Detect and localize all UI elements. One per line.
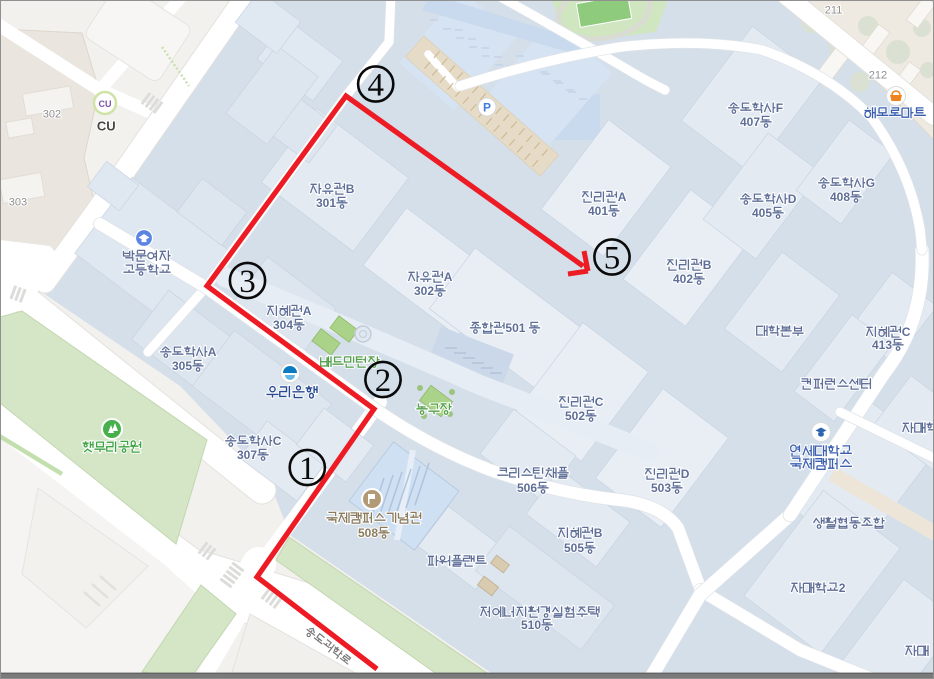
svg-text:B: B bbox=[703, 258, 712, 272]
svg-text:302: 302 bbox=[414, 284, 434, 298]
svg-text:211: 211 bbox=[825, 5, 843, 17]
svg-text:401: 401 bbox=[588, 204, 608, 218]
svg-text:A: A bbox=[303, 304, 312, 318]
svg-text:301: 301 bbox=[316, 196, 336, 210]
svg-text:2: 2 bbox=[375, 363, 392, 399]
svg-text:501: 501 bbox=[505, 321, 525, 335]
svg-text:5: 5 bbox=[604, 241, 621, 277]
svg-text:1: 1 bbox=[299, 451, 316, 487]
svg-text:CU: CU bbox=[97, 118, 116, 133]
svg-text:C: C bbox=[902, 325, 911, 339]
svg-text:505: 505 bbox=[564, 541, 584, 555]
svg-text:413: 413 bbox=[872, 338, 892, 352]
svg-text:304: 304 bbox=[273, 318, 293, 332]
svg-text:D: D bbox=[681, 467, 690, 481]
svg-text:3: 3 bbox=[239, 264, 256, 300]
svg-text:303: 303 bbox=[9, 197, 27, 209]
svg-text:A: A bbox=[618, 190, 627, 204]
svg-text:305: 305 bbox=[172, 359, 192, 373]
svg-text:A: A bbox=[208, 345, 217, 359]
svg-text:502: 502 bbox=[565, 409, 585, 423]
svg-text:D: D bbox=[788, 192, 797, 206]
svg-text:F: F bbox=[776, 101, 783, 115]
svg-text:C: C bbox=[595, 395, 604, 409]
svg-text:307: 307 bbox=[237, 448, 257, 462]
svg-text:4: 4 bbox=[367, 68, 384, 104]
svg-text:508: 508 bbox=[358, 526, 378, 540]
svg-text:503: 503 bbox=[651, 481, 671, 495]
svg-text:405: 405 bbox=[752, 206, 772, 220]
svg-text:510: 510 bbox=[521, 618, 541, 632]
svg-text:CU: CU bbox=[99, 99, 112, 109]
svg-text:B: B bbox=[346, 182, 355, 196]
svg-text:2: 2 bbox=[839, 581, 846, 595]
svg-text:407: 407 bbox=[740, 115, 760, 129]
svg-text:C: C bbox=[273, 434, 282, 448]
svg-text:B: B bbox=[594, 526, 603, 540]
svg-text:302: 302 bbox=[43, 109, 61, 121]
svg-text:212: 212 bbox=[869, 70, 887, 82]
svg-text:A: A bbox=[444, 270, 453, 284]
svg-text:G: G bbox=[866, 176, 875, 190]
svg-text:402: 402 bbox=[673, 272, 693, 286]
svg-text:408: 408 bbox=[830, 190, 850, 204]
svg-text:506: 506 bbox=[517, 481, 537, 495]
svg-text:P: P bbox=[483, 101, 491, 115]
